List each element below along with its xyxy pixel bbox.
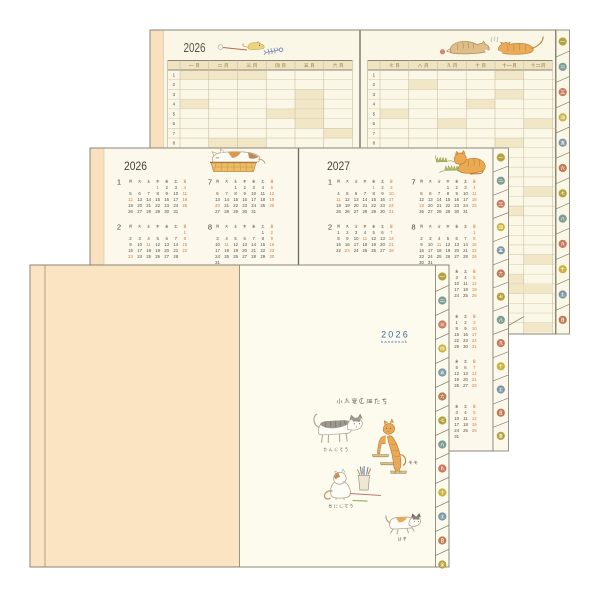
svg-text:12: 12 (269, 191, 274, 196)
svg-text:18: 18 (472, 197, 477, 202)
svg-text:12: 12 (233, 242, 238, 247)
svg-text:20: 20 (463, 377, 468, 382)
svg-text:27: 27 (215, 209, 220, 214)
svg-text:26: 26 (371, 248, 376, 253)
svg-text:13: 13 (428, 197, 433, 202)
svg-text:14: 14 (173, 242, 178, 247)
svg-text:16: 16 (345, 242, 350, 247)
svg-text:21: 21 (363, 203, 368, 208)
svg-text:19: 19 (472, 287, 477, 292)
svg-text:19: 19 (345, 203, 350, 208)
svg-text:11: 11 (183, 191, 188, 196)
svg-text:16: 16 (164, 197, 169, 202)
svg-text:27: 27 (164, 254, 169, 259)
svg-text:30: 30 (269, 254, 274, 259)
svg-text:20: 20 (380, 242, 385, 247)
svg-text:21: 21 (146, 203, 151, 208)
svg-text:21: 21 (251, 248, 256, 253)
svg-text:26: 26 (233, 254, 238, 259)
svg-text:31: 31 (173, 209, 178, 214)
svg-text:22: 22 (155, 203, 160, 208)
svg-text:23: 23 (419, 254, 424, 259)
svg-text:2: 2 (328, 223, 332, 232)
svg-text:31: 31 (251, 209, 256, 214)
svg-text:11: 11 (336, 197, 341, 202)
svg-text:20: 20 (454, 248, 459, 253)
svg-text:16: 16 (128, 248, 133, 253)
svg-text:15: 15 (182, 242, 187, 247)
svg-text:2026: 2026 (124, 161, 147, 173)
svg-text:21: 21 (173, 248, 178, 253)
svg-text:30: 30 (242, 209, 247, 214)
svg-text:30: 30 (463, 344, 468, 349)
svg-text:18: 18 (336, 203, 341, 208)
svg-text:12: 12 (472, 416, 477, 421)
svg-text:11: 11 (146, 242, 151, 247)
svg-text:14: 14 (146, 197, 151, 202)
svg-text:24: 24 (389, 203, 394, 208)
svg-text:2026: 2026 (184, 41, 206, 55)
svg-text:12: 12 (472, 281, 477, 286)
svg-text:17: 17 (215, 248, 220, 253)
svg-text:13: 13 (463, 371, 468, 376)
svg-text:14: 14 (472, 371, 477, 376)
svg-text:18: 18 (224, 248, 229, 253)
svg-text:18: 18 (260, 197, 265, 202)
svg-text:19: 19 (371, 242, 376, 247)
svg-text:17: 17 (251, 197, 256, 202)
svg-text:11: 11 (463, 281, 468, 286)
svg-text:21: 21 (224, 203, 229, 208)
svg-text:13: 13 (137, 197, 142, 202)
svg-text:25: 25 (182, 203, 187, 208)
svg-text:25: 25 (336, 209, 341, 214)
svg-text:18: 18 (182, 197, 187, 202)
svg-text:1: 1 (328, 178, 332, 187)
svg-text:17: 17 (173, 197, 178, 202)
svg-text:12: 12 (371, 236, 376, 241)
svg-text:23: 23 (242, 203, 247, 208)
svg-text:23: 23 (380, 203, 385, 208)
svg-text:17: 17 (472, 332, 477, 337)
svg-text:24: 24 (454, 293, 459, 298)
svg-text:29: 29 (472, 254, 477, 259)
svg-text:20: 20 (242, 248, 247, 253)
svg-text:17: 17 (354, 242, 359, 247)
svg-text:22: 22 (371, 203, 376, 208)
svg-text:26: 26 (345, 209, 350, 214)
svg-text:29: 29 (371, 209, 376, 214)
svg-text:27: 27 (242, 254, 247, 259)
svg-text:2: 2 (117, 223, 121, 232)
svg-text:10: 10 (137, 242, 142, 247)
svg-text:24: 24 (251, 203, 256, 208)
svg-text:10: 10 (454, 416, 459, 421)
svg-text:13: 13 (380, 236, 385, 241)
svg-text:22: 22 (260, 248, 265, 253)
svg-text:14: 14 (463, 242, 468, 247)
svg-text:23: 23 (454, 203, 459, 208)
svg-text:2027: 2027 (327, 161, 350, 173)
svg-text:28: 28 (146, 209, 151, 214)
svg-text:31: 31 (428, 260, 433, 265)
svg-text:20: 20 (428, 203, 433, 208)
svg-text:15: 15 (233, 197, 238, 202)
svg-text:10: 10 (428, 242, 433, 247)
svg-text:26: 26 (155, 254, 160, 259)
svg-text:24: 24 (472, 338, 477, 343)
svg-text:30: 30 (380, 209, 385, 214)
svg-text:1: 1 (117, 178, 121, 187)
svg-text:13: 13 (164, 242, 169, 247)
svg-text:23: 23 (269, 248, 274, 253)
svg-text:11: 11 (463, 416, 468, 421)
svg-text:28: 28 (173, 254, 178, 259)
svg-text:19: 19 (128, 203, 133, 208)
svg-text:15: 15 (260, 242, 265, 247)
svg-text:18: 18 (146, 248, 151, 253)
svg-text:26: 26 (446, 254, 451, 259)
svg-text:19: 19 (233, 248, 238, 253)
svg-text:14: 14 (389, 236, 394, 241)
svg-text:29: 29 (446, 209, 451, 214)
svg-text:12: 12 (128, 197, 133, 202)
svg-text:31: 31 (472, 344, 477, 349)
svg-text:25: 25 (224, 254, 229, 259)
svg-text:20: 20 (137, 203, 142, 208)
svg-text:31: 31 (454, 434, 459, 439)
svg-text:24: 24 (173, 203, 178, 208)
svg-text:10: 10 (215, 242, 220, 247)
svg-text:17: 17 (428, 248, 433, 253)
svg-text:25: 25 (472, 203, 477, 208)
svg-text:15: 15 (371, 197, 376, 202)
svg-text:21: 21 (389, 242, 394, 247)
svg-text:14: 14 (437, 197, 442, 202)
svg-text:24: 24 (215, 254, 220, 259)
svg-text:10: 10 (389, 191, 394, 196)
svg-text:30: 30 (419, 260, 424, 265)
svg-text:26: 26 (472, 293, 477, 298)
svg-text:24: 24 (137, 254, 142, 259)
svg-text:23: 23 (128, 254, 133, 259)
svg-text:11: 11 (261, 191, 266, 196)
svg-text:21: 21 (463, 248, 468, 253)
svg-text:26: 26 (128, 209, 133, 214)
svg-text:22: 22 (336, 248, 341, 253)
svg-text:28: 28 (224, 209, 229, 214)
svg-text:14: 14 (224, 197, 229, 202)
svg-text:26: 26 (472, 428, 477, 433)
svg-text:15: 15 (336, 242, 341, 247)
svg-text:22: 22 (472, 248, 477, 253)
svg-text:8: 8 (411, 223, 415, 232)
svg-text:29: 29 (454, 344, 459, 349)
svg-text:19: 19 (155, 248, 160, 253)
svg-text:18: 18 (363, 242, 368, 247)
svg-text:19: 19 (419, 203, 424, 208)
svg-text:10: 10 (454, 281, 459, 286)
svg-text:25: 25 (463, 428, 468, 433)
svg-text:22: 22 (233, 203, 238, 208)
svg-text:8: 8 (208, 223, 212, 232)
svg-text:11: 11 (437, 242, 442, 247)
svg-text:13: 13 (354, 197, 359, 202)
svg-text:30: 30 (164, 209, 169, 214)
svg-text:10: 10 (251, 191, 256, 196)
svg-text:19: 19 (269, 197, 274, 202)
svg-text:7: 7 (411, 178, 415, 187)
svg-text:7: 7 (208, 178, 212, 187)
svg-text:15: 15 (155, 197, 160, 202)
svg-text:17: 17 (389, 197, 394, 202)
svg-text:15: 15 (446, 197, 451, 202)
svg-text:16: 16 (380, 197, 385, 202)
svg-text:10: 10 (472, 326, 477, 331)
svg-text:12: 12 (454, 371, 459, 376)
svg-text:20: 20 (164, 248, 169, 253)
svg-text:16: 16 (463, 332, 468, 337)
svg-text:24: 24 (354, 248, 359, 253)
svg-text:31: 31 (389, 209, 394, 214)
svg-text:27: 27 (463, 383, 468, 388)
svg-text:25: 25 (437, 254, 442, 259)
svg-text:10: 10 (463, 191, 468, 196)
svg-text:16: 16 (269, 242, 274, 247)
svg-text:27: 27 (380, 248, 385, 253)
svg-text:27: 27 (137, 209, 142, 214)
svg-text:14: 14 (251, 242, 256, 247)
svg-text:25: 25 (260, 203, 265, 208)
svg-text:10: 10 (173, 191, 178, 196)
svg-text:31: 31 (215, 260, 220, 265)
svg-text:10: 10 (354, 236, 359, 241)
svg-text:29: 29 (260, 254, 265, 259)
svg-text:20: 20 (215, 203, 220, 208)
svg-text:11: 11 (363, 236, 368, 241)
svg-text:28: 28 (251, 254, 256, 259)
svg-text:26: 26 (454, 383, 459, 388)
svg-text:24: 24 (463, 203, 468, 208)
svg-text:29: 29 (233, 209, 238, 214)
svg-text:30: 30 (454, 209, 459, 214)
svg-text:14: 14 (363, 197, 368, 202)
svg-text:handbook: handbook (381, 339, 408, 344)
svg-text:19: 19 (472, 422, 477, 427)
svg-text:23: 23 (463, 338, 468, 343)
svg-text:11: 11 (472, 191, 477, 196)
svg-text:18: 18 (463, 422, 468, 427)
svg-text:28: 28 (437, 209, 442, 214)
svg-text:22: 22 (454, 338, 459, 343)
svg-text:20: 20 (354, 203, 359, 208)
svg-text:12: 12 (155, 242, 160, 247)
svg-text:16: 16 (454, 197, 459, 202)
svg-text:17: 17 (454, 422, 459, 427)
svg-text:24: 24 (454, 428, 459, 433)
svg-text:22: 22 (182, 248, 187, 253)
svg-text:23: 23 (345, 248, 350, 253)
svg-text:26: 26 (269, 203, 274, 208)
svg-text:12: 12 (419, 197, 424, 202)
svg-text:26: 26 (419, 209, 424, 214)
svg-text:23: 23 (164, 203, 169, 208)
svg-text:24: 24 (428, 254, 433, 259)
svg-text:29: 29 (155, 209, 160, 214)
svg-text:27: 27 (354, 209, 359, 214)
svg-text:28: 28 (363, 209, 368, 214)
svg-text:28: 28 (472, 383, 477, 388)
svg-text:18: 18 (437, 248, 442, 253)
svg-text:15: 15 (454, 332, 459, 337)
svg-text:12: 12 (345, 197, 350, 202)
svg-text:13: 13 (215, 197, 220, 202)
svg-text:17: 17 (137, 248, 142, 253)
svg-text:25: 25 (146, 254, 151, 259)
svg-text:27: 27 (428, 209, 433, 214)
svg-text:21: 21 (437, 203, 442, 208)
svg-text:28: 28 (389, 248, 394, 253)
svg-text:13: 13 (242, 242, 247, 247)
svg-text:16: 16 (419, 248, 424, 253)
svg-text:22: 22 (446, 203, 451, 208)
svg-text:28: 28 (463, 254, 468, 259)
svg-text:15: 15 (472, 242, 477, 247)
svg-text:21: 21 (472, 377, 477, 382)
svg-text:25: 25 (463, 293, 468, 298)
svg-text:18: 18 (463, 287, 468, 292)
svg-text:13: 13 (454, 242, 459, 247)
svg-text:31: 31 (463, 209, 468, 214)
svg-text:25: 25 (363, 248, 368, 253)
svg-text:27: 27 (454, 254, 459, 259)
svg-text:17: 17 (463, 197, 468, 202)
svg-text:19: 19 (454, 377, 459, 382)
svg-text:12: 12 (446, 242, 451, 247)
svg-text:17: 17 (454, 287, 459, 292)
svg-text:16: 16 (242, 197, 247, 202)
svg-text:19: 19 (446, 248, 451, 253)
svg-text:11: 11 (224, 242, 229, 247)
